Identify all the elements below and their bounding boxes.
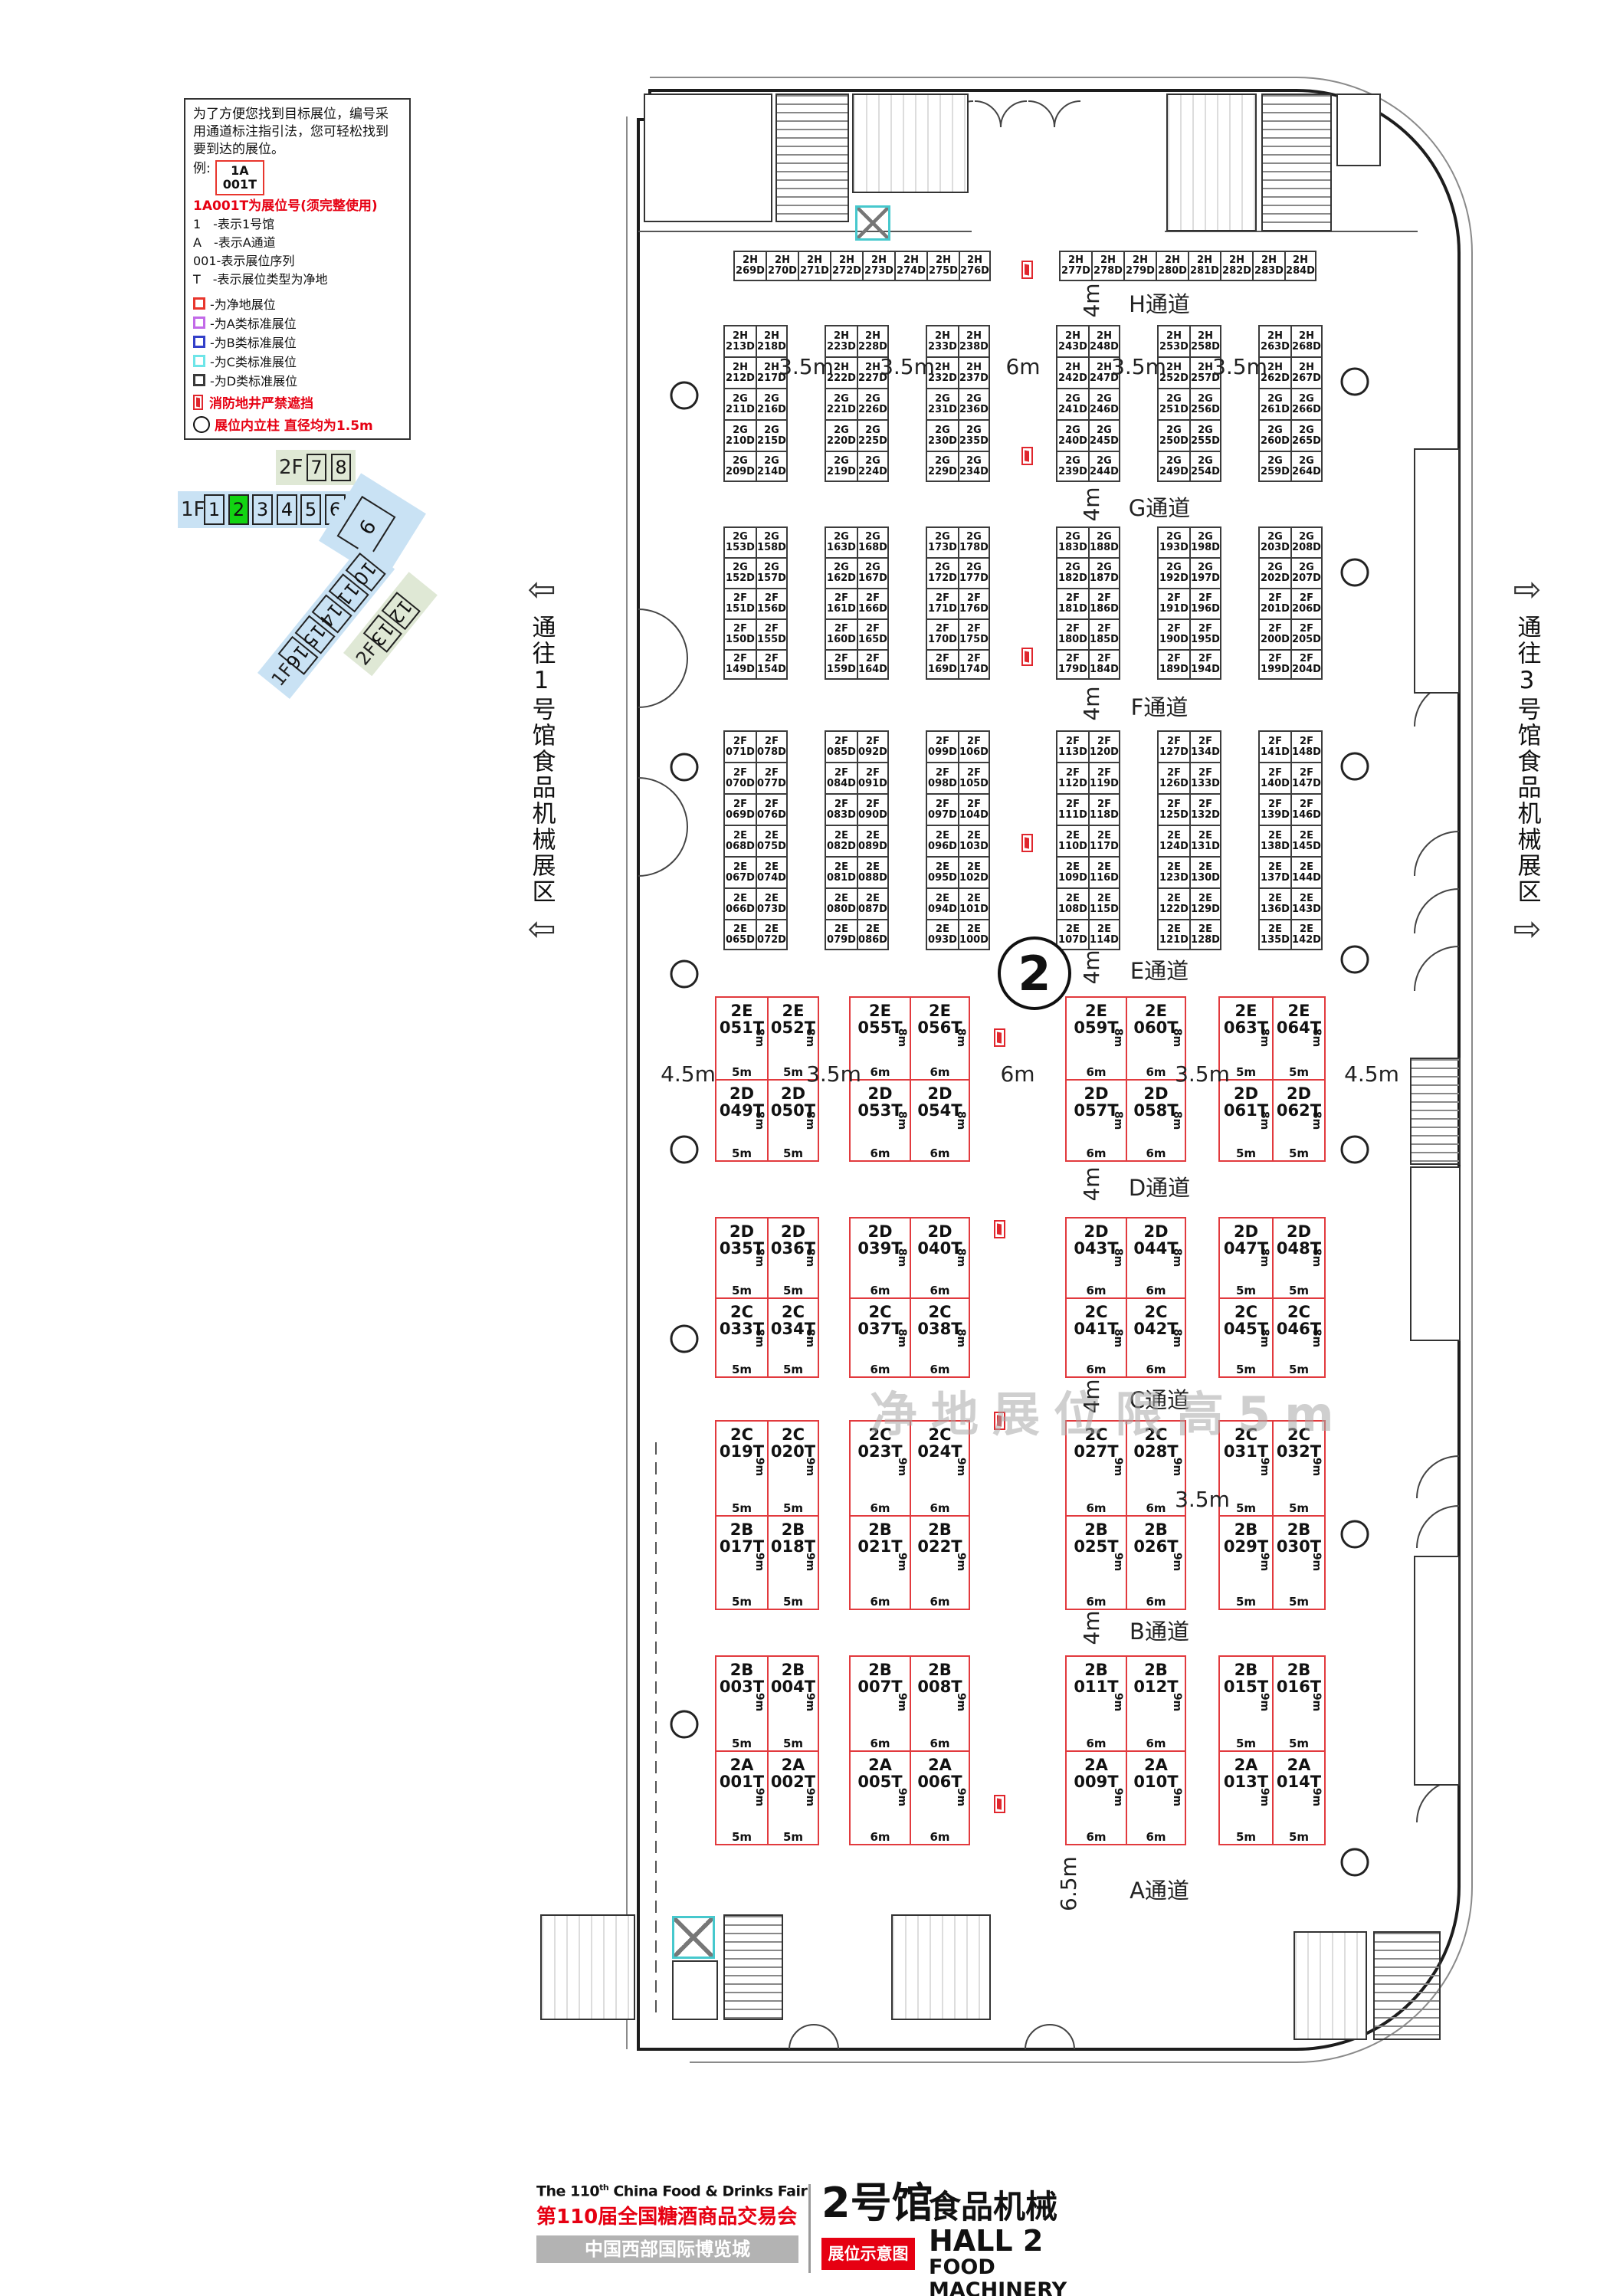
hall2-floorplan: 为了方便您找到目标展位，编号采 用通道标注指引法，您可轻松找到 要到达的展位。 … — [0, 0, 1623, 2296]
hall-number-circle: 2 — [998, 936, 1071, 1010]
label-layer: 2 — [0, 0, 1623, 2296]
